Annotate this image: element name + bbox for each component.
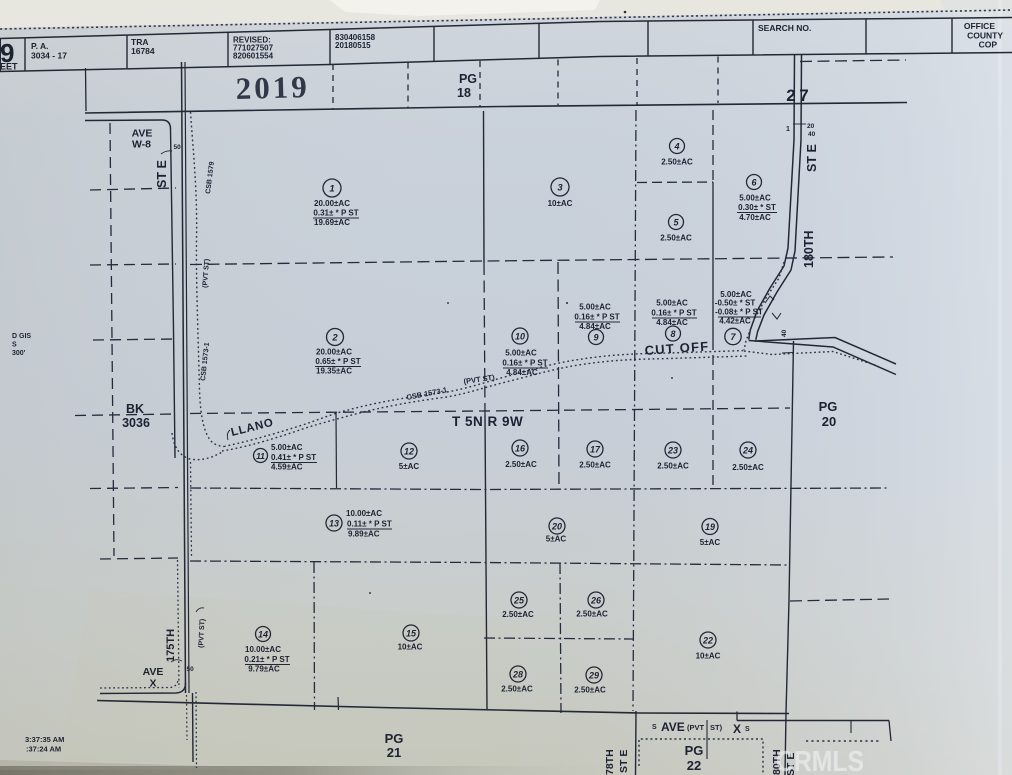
svg-text:0.65± * P ST: 0.65± * P ST [315,357,360,366]
svg-text:2.50±AC: 2.50±AC [657,462,689,471]
svg-text:9: 9 [593,333,598,343]
svg-text:(PVT: (PVT [687,723,705,732]
svg-text:20: 20 [822,414,836,429]
svg-text:2.50±AC: 2.50±AC [502,610,534,619]
svg-text:0.16± * P ST: 0.16± * P ST [502,359,547,368]
svg-text:5.00±AC: 5.00±AC [579,303,611,312]
svg-text:16784: 16784 [131,46,155,56]
svg-text:0.30± * ST: 0.30± * ST [738,203,776,212]
svg-text:-0.08± * P ST: -0.08± * P ST [715,308,763,317]
svg-text:3036: 3036 [122,416,150,430]
svg-text:0.16± * P ST: 0.16± * P ST [574,313,619,322]
svg-text:175TH: 175TH [165,629,177,662]
svg-text:PG: PG [819,399,838,414]
svg-text:2.50±AC: 2.50±AC [660,234,692,243]
svg-text:2.50±AC: 2.50±AC [505,460,537,469]
svg-text:1: 1 [786,126,790,133]
svg-text:12: 12 [404,447,414,457]
svg-text:EET: EET [0,62,18,72]
svg-text:5±AC: 5±AC [546,535,567,544]
svg-text:2: 2 [786,86,795,105]
svg-text:ST E: ST E [618,750,630,773]
svg-text:18: 18 [457,86,471,100]
svg-text:W-8: W-8 [132,139,151,151]
svg-text:19: 19 [705,522,715,532]
svg-text:20180515: 20180515 [335,41,371,50]
svg-text:25: 25 [513,596,525,606]
svg-text:D GIS: D GIS [12,333,31,340]
svg-text:X: X [149,678,156,690]
svg-text:2: 2 [331,333,338,344]
svg-text:10±AC: 10±AC [548,199,573,208]
svg-text:14: 14 [258,630,268,640]
svg-text:20.00±AC: 20.00±AC [314,199,350,208]
svg-text:300': 300' [12,350,26,357]
svg-text:ST): ST) [710,723,723,732]
svg-text:PG: PG [385,731,404,746]
svg-text:T 5N R 9W: T 5N R 9W [452,414,523,429]
svg-text:29: 29 [588,671,599,681]
svg-text:15: 15 [406,629,417,639]
svg-text:7: 7 [799,86,808,105]
svg-text:24: 24 [742,446,753,456]
svg-text:OFFICE: OFFICE [964,21,995,31]
svg-text:23: 23 [667,446,678,456]
svg-text:10.00±AC: 10.00±AC [346,509,382,518]
svg-text:28: 28 [512,670,523,680]
svg-text:5.00±AC: 5.00±AC [739,194,771,203]
svg-text:10: 10 [515,332,525,342]
svg-text:ST E: ST E [805,144,819,172]
svg-text:78TH: 78TH [604,749,616,775]
svg-text:4.84±AC: 4.84±AC [506,368,538,377]
svg-text:4.70±AC: 4.70±AC [739,213,771,222]
svg-text:0.41± * P ST: 0.41± * P ST [271,453,316,462]
svg-text:0.21± * P ST: 0.21± * P ST [244,655,289,664]
svg-text:2.50±AC: 2.50±AC [579,461,611,470]
svg-text:50: 50 [187,666,195,673]
svg-text:3:37:35 AM: 3:37:35 AM [25,735,64,744]
svg-text:11: 11 [256,451,265,461]
svg-text:20.00±AC: 20.00±AC [316,348,352,357]
svg-text:S: S [12,342,17,349]
svg-text:2.50±AC: 2.50±AC [661,158,693,167]
svg-text:10.00±AC: 10.00±AC [245,645,281,654]
svg-text:S: S [745,726,750,733]
svg-text:2.50±AC: 2.50±AC [574,686,606,695]
svg-text:2.50±AC: 2.50±AC [732,463,764,472]
svg-text:5±AC: 5±AC [399,462,420,471]
svg-text:1: 1 [329,184,334,195]
svg-text:SEARCH NO.: SEARCH NO. [758,23,811,33]
svg-text:50: 50 [174,144,182,151]
svg-text:S: S [652,724,657,731]
svg-text:22: 22 [702,636,713,646]
svg-text:P. A.: P. A. [31,41,48,51]
svg-text:CRMLS: CRMLS [776,746,864,775]
svg-text:16: 16 [515,444,526,454]
svg-text:0.11± * P ST: 0.11± * P ST [347,520,392,529]
svg-text:5.00±AC: 5.00±AC [505,349,537,358]
svg-text:10±AC: 10±AC [696,652,721,661]
svg-text:20: 20 [807,123,815,130]
svg-text:22: 22 [687,758,701,773]
svg-text:3034 - 17: 3034 - 17 [31,51,67,61]
svg-text:4.59±AC: 4.59±AC [271,463,303,472]
svg-text:0.16± * P ST: 0.16± * P ST [651,309,696,318]
svg-text:5.00±AC: 5.00±AC [271,443,303,452]
svg-text:5±AC: 5±AC [700,538,721,547]
svg-text:2.50±AC: 2.50±AC [501,685,533,694]
svg-text:20: 20 [551,522,562,532]
svg-text:10±AC: 10±AC [398,643,423,652]
svg-text:8: 8 [670,329,675,339]
svg-text:PG: PG [459,72,477,86]
svg-text:21: 21 [387,745,401,760]
svg-text:9.79±AC: 9.79±AC [248,665,280,674]
svg-text:17: 17 [590,445,601,455]
svg-text:-0.50± * ST: -0.50± * ST [715,299,756,308]
svg-text:19.35±AC: 19.35±AC [316,367,352,376]
svg-text:2.50±AC: 2.50±AC [576,610,608,619]
svg-text:2019: 2019 [235,69,310,106]
svg-text:COP: COP [979,40,998,50]
svg-text:0.31± * P ST: 0.31± * P ST [313,209,358,218]
svg-text:40: 40 [781,329,788,337]
svg-text:13: 13 [329,519,339,529]
svg-text:4.42±AC: 4.42±AC [719,317,751,326]
svg-text:AVE: AVE [143,666,164,678]
svg-text:19.69±AC: 19.69±AC [314,218,350,227]
svg-text:BK: BK [126,402,144,416]
svg-text:26: 26 [590,596,602,606]
svg-text:820601554: 820601554 [233,52,274,61]
svg-text:180TH: 180TH [802,230,816,268]
svg-text:ST E: ST E [155,160,169,188]
svg-text:9.89±AC: 9.89±AC [348,530,380,539]
svg-text:PG: PG [685,743,704,758]
svg-text::37:24 AM: :37:24 AM [26,745,61,754]
svg-text:AVE: AVE [661,720,685,734]
svg-text:4: 4 [673,142,679,152]
svg-text:5.00±AC: 5.00±AC [656,299,688,308]
svg-text:X: X [733,722,741,736]
svg-text:3: 3 [557,183,563,194]
svg-text:40: 40 [808,131,816,138]
